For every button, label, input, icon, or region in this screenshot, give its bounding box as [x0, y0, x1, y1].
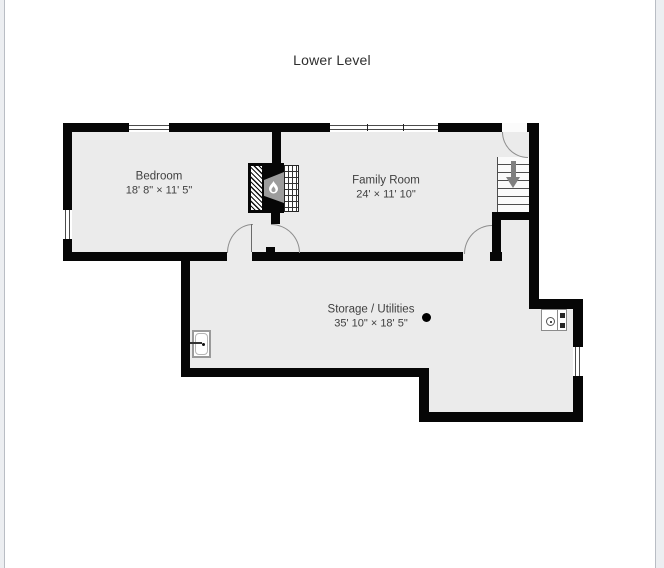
room-dimensions: 35' 10" × 18' 5" — [328, 317, 415, 330]
room-name: Family Room — [352, 175, 420, 189]
floor-plan-title: Lower Level — [0, 52, 664, 68]
wall — [181, 368, 429, 377]
room-dimensions: 24' × 11' 10" — [352, 188, 420, 201]
window-mullion — [403, 124, 404, 131]
window-glass-line — [129, 125, 169, 126]
flame-icon — [269, 181, 278, 194]
window-glass-line — [579, 347, 580, 376]
window-glass-line — [69, 210, 70, 239]
utility-appliance-icon — [541, 309, 567, 331]
page-edge-left — [0, 0, 5, 568]
window-glass-line — [65, 210, 66, 239]
room-dimensions: 18' 8" × 11' 5" — [126, 184, 193, 197]
window-glass-line — [330, 125, 438, 126]
wall — [63, 252, 227, 261]
sink-faucet-line — [190, 342, 202, 344]
door-leaf — [251, 224, 253, 252]
appliance-knob-icon — [560, 323, 565, 328]
page-edge-right — [655, 0, 664, 568]
wall — [271, 213, 280, 224]
door-opening — [502, 123, 527, 132]
fireplace-hatch — [251, 166, 262, 210]
floor-storage-mid — [429, 252, 529, 412]
appliance-dial-dot — [550, 321, 552, 323]
stairs-down-arrow-head-icon — [506, 177, 520, 188]
door-opening — [227, 252, 252, 261]
room-name: Storage / Utilities — [328, 304, 415, 318]
window-glass-line — [575, 347, 576, 376]
utility-sink-icon — [192, 330, 211, 358]
support-column-dot — [422, 313, 431, 322]
wall — [252, 252, 463, 261]
appliance-divider — [557, 310, 558, 330]
wall — [529, 123, 539, 309]
room-label-family-room: Family Room 24' × 11' 10" — [352, 175, 420, 202]
wall — [419, 412, 583, 422]
wall — [492, 212, 532, 220]
window-glass-line — [330, 129, 438, 130]
wall — [181, 252, 190, 377]
appliance-knob-icon — [560, 313, 565, 318]
appliance-dial-icon — [546, 317, 555, 326]
window-mullion — [367, 124, 368, 131]
room-label-storage-utilities: Storage / Utilities 35' 10" × 18' 5" — [328, 304, 415, 331]
wall — [63, 123, 72, 261]
wall — [272, 132, 281, 164]
window-glass-line — [129, 129, 169, 130]
stairs-down-arrow-icon — [511, 161, 516, 178]
sink-drain-dot — [202, 343, 205, 346]
room-label-bedroom: Bedroom 18' 8" × 11' 5" — [126, 171, 193, 198]
room-name: Bedroom — [126, 171, 193, 185]
fireplace-hearth-grid — [284, 165, 299, 212]
